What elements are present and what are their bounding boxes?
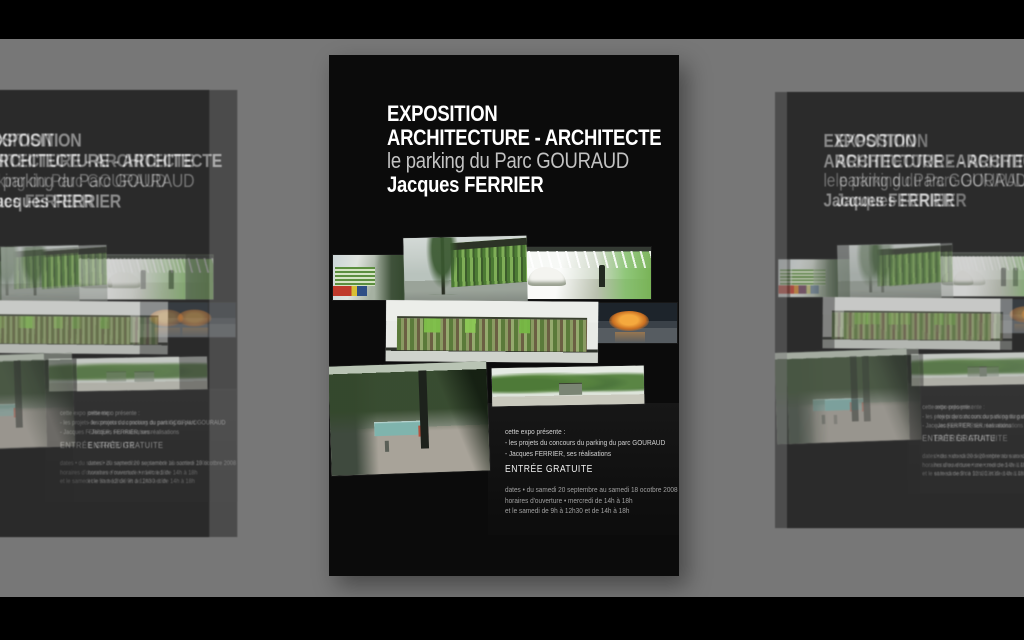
poster-title-line2: ARCHITECTURE - ARCHITECTE	[0, 150, 222, 170]
figures-silhouette	[14, 408, 18, 418]
free-entry-label: ENTRÉE GRATUITE	[505, 464, 593, 475]
dates-line: dates • du samedi 20 septembre au samedi…	[505, 485, 678, 496]
poster-subtitle: le parking du Parc GOURAUD	[0, 171, 222, 191]
poster-title-block: EXPOSITION ARCHITECTURE - ARCHITECTE le …	[824, 131, 1024, 210]
dates-line: dates • du samedi 20 septembre au samedi…	[922, 452, 1024, 461]
poster-title-block: EXPOSITION ARCHITECTURE - ARCHITECTE le …	[0, 130, 222, 211]
expo-item-line: - Jacques FERRIER, ses réalisations	[88, 428, 225, 437]
render-thumb-street-scene	[329, 361, 490, 475]
hours-line: horaires d'ouverture • mercredi de 14h à…	[922, 461, 1024, 470]
render-thumb-street-scene	[0, 353, 75, 451]
render-thumb-building-entrance	[837, 243, 941, 300]
free-entry-label: ENTRÉE GRATUITE	[922, 434, 996, 443]
dates-block: dates • du samedi 20 septembre au samedi…	[505, 485, 678, 517]
render-thumb-bus-street	[333, 255, 408, 300]
poster-author: Jacques FERRIER	[387, 173, 661, 197]
poster-title-line1: EXPOSITION	[0, 130, 222, 150]
pedestrian-silhouette	[599, 265, 605, 287]
render-thumb-park-panorama	[492, 366, 645, 407]
poster-author: Jacques FERRIER	[0, 191, 222, 211]
expo-intro-line: cette expo présente :	[922, 403, 1024, 412]
render-thumb-park-panorama	[77, 357, 208, 392]
render-thumb-orange-lobby	[167, 303, 236, 337]
render-thumb-parking-interior	[103, 255, 213, 300]
render-thumb-parking-interior	[937, 253, 1024, 297]
expo-intro-line: cette expo présente :	[88, 409, 225, 418]
expo-item-line: - les projets du concours du parking du …	[88, 418, 225, 427]
figures-silhouette	[418, 426, 422, 437]
render-thumb-orange-lobby	[999, 300, 1024, 333]
pedestrian-silhouette	[1001, 268, 1006, 286]
poster-title-line1: EXPOSITION	[824, 131, 1024, 151]
poster-title-line2: ARCHITECTURE - ARCHITECTE	[387, 126, 661, 150]
exhibition-poster: EXPOSITION ARCHITECTURE - ARCHITECTE le …	[775, 92, 1024, 528]
hours-line: horaires d'ouverture • mercredi de 14h à…	[505, 496, 678, 507]
render-thumb-building-entrance	[1, 245, 108, 303]
expo-description: cette expo présente : - les projets du c…	[505, 427, 665, 459]
hours-line: et le samedi de 9h à 12h30 et de 14h à 1…	[88, 477, 236, 486]
dates-block: dates • du samedi 20 septembre au samedi…	[88, 459, 236, 486]
poster-subtitle: le parking du Parc GOURAUD	[824, 171, 1024, 191]
expo-item-line: - Jacques FERRIER, ses réalisations	[922, 421, 1024, 430]
hours-line: horaires d'ouverture • mercredi de 14h à…	[88, 468, 236, 477]
render-thumb-building-elevation	[822, 297, 1000, 350]
letterbox-top	[0, 0, 1024, 39]
expo-item-line: - Jacques FERRIER, ses réalisations	[505, 449, 665, 460]
render-thumb-park-panorama	[911, 352, 1024, 386]
free-entry-label: ENTRÉE GRATUITE	[88, 441, 163, 450]
exhibition-poster: EXPOSITION ARCHITECTURE - ARCHITECTE le …	[0, 90, 237, 537]
poster-author: Jacques FERRIER	[824, 190, 1024, 210]
render-thumb-building-entrance	[403, 236, 527, 304]
hours-line: et le samedi de 9h à 12h30 et de 14h à 1…	[922, 470, 1024, 479]
expo-item-line: - les projets du concours du parking du …	[505, 438, 665, 449]
poster-title-line1: EXPOSITION	[387, 102, 661, 126]
expo-description: cette expo présente : - les projets du c…	[88, 409, 225, 437]
dates-line: dates • du samedi 20 septembre au samedi…	[88, 459, 236, 468]
poster-subtitle: le parking du Parc GOURAUD	[387, 149, 661, 173]
poster-title-line2: ARCHITECTURE - ARCHITECTE	[824, 151, 1024, 171]
render-thumb-street-scene	[775, 348, 910, 444]
expo-intro-line: cette expo présente :	[505, 427, 665, 438]
poster-title-block: EXPOSITION ARCHITECTURE - ARCHITECTE le …	[387, 102, 661, 196]
figures-silhouette	[850, 402, 854, 411]
expo-item-line: - les projets du concours du parking du …	[922, 412, 1024, 421]
render-thumb-building-elevation	[386, 300, 599, 363]
render-thumb-parking-interior	[523, 247, 651, 299]
hours-line: et le samedi de 9h à 12h30 et de 14h à 1…	[505, 506, 678, 517]
dates-block: dates • du samedi 20 septembre au samedi…	[922, 452, 1024, 479]
render-thumb-building-elevation	[0, 300, 168, 354]
render-thumb-bus-street	[778, 259, 841, 297]
render-thumb-orange-lobby	[597, 303, 677, 343]
pedestrian-silhouette	[169, 270, 174, 289]
expo-description: cette expo présente : - les projets du c…	[922, 403, 1024, 430]
letterbox-bottom	[0, 597, 1024, 640]
exhibition-poster: EXPOSITION ARCHITECTURE - ARCHITECTE le …	[329, 55, 679, 576]
